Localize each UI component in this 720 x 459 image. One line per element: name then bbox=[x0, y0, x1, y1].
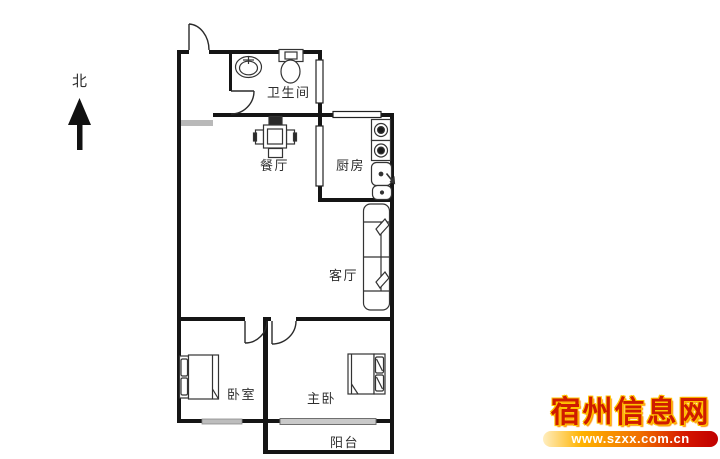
burner-center-2 bbox=[378, 147, 385, 154]
master-bedroom-door bbox=[272, 321, 296, 344]
watermark: 宿州信息网 www.szxx.com.cn bbox=[543, 396, 718, 447]
bathroom-window bbox=[316, 60, 323, 103]
north-label: 北 bbox=[72, 72, 87, 90]
label-living-room: 客厅 bbox=[329, 268, 358, 284]
stove-burner-icon bbox=[372, 120, 391, 161]
watermark-url: www.szxx.com.cn bbox=[543, 431, 718, 447]
dining-chair-bottom bbox=[269, 149, 283, 158]
kitchen-sliding-door bbox=[316, 126, 323, 186]
dining-table-inner bbox=[268, 129, 283, 144]
north-arrow-shaft bbox=[77, 124, 83, 150]
dining-table-icon bbox=[254, 117, 297, 158]
wall-top bbox=[209, 50, 322, 54]
label-master-bedroom: 主卧 bbox=[307, 392, 336, 407]
bed1-pillow-1 bbox=[181, 359, 188, 376]
wall-bedrooms-top-left bbox=[177, 317, 245, 321]
wall-bathroom-left bbox=[229, 54, 232, 91]
wall-bedrooms-top-right bbox=[296, 317, 394, 321]
master-door-swing bbox=[272, 321, 296, 344]
sofa-icon bbox=[364, 204, 390, 310]
balcony-window bbox=[280, 419, 376, 425]
wall-balcony-bottom bbox=[263, 450, 394, 454]
sink-drain-large bbox=[379, 172, 383, 176]
dining-chair-left-back bbox=[254, 133, 257, 141]
wall-bedroom-divider bbox=[263, 317, 268, 453]
sink-drain-small bbox=[381, 191, 384, 194]
kitchen-fixtures bbox=[372, 120, 395, 200]
bedroom-bed-icon bbox=[180, 355, 219, 399]
beam-line bbox=[181, 120, 213, 126]
wall-bathroom-bottom bbox=[213, 113, 322, 117]
entry-door bbox=[189, 24, 209, 50]
bedroom-window bbox=[202, 419, 242, 424]
label-kitchen: 厨房 bbox=[336, 158, 365, 174]
dining-chair-top bbox=[269, 117, 282, 126]
entry-door-swing bbox=[189, 24, 209, 50]
floorplan-canvas: 北 bbox=[0, 0, 720, 459]
bathroom-door bbox=[231, 91, 254, 114]
wash-basin-icon bbox=[236, 57, 262, 78]
bed1-pillow-2 bbox=[181, 378, 188, 395]
label-dining-room: 餐厅 bbox=[260, 158, 289, 174]
toilet-icon bbox=[279, 50, 303, 84]
north-arrow-head bbox=[68, 98, 91, 125]
label-bedroom: 卧室 bbox=[227, 387, 256, 403]
bathroom-fixtures bbox=[236, 50, 304, 84]
kitchen-window bbox=[333, 112, 381, 118]
north-arrow: 北 bbox=[68, 72, 91, 150]
kitchen-sink-icon bbox=[372, 163, 395, 200]
bathroom-door-swing bbox=[231, 91, 254, 114]
master-bed-icon bbox=[348, 354, 385, 394]
label-bathroom: 卫生间 bbox=[267, 86, 311, 101]
burner-center-1 bbox=[378, 127, 385, 134]
watermark-site-name: 宿州信息网 bbox=[543, 396, 718, 430]
toilet-tank-lid bbox=[285, 52, 297, 59]
toilet-bowl bbox=[281, 60, 300, 83]
dining-chair-right-back bbox=[294, 133, 297, 141]
label-balcony: 阳台 bbox=[330, 436, 359, 451]
floorplan-page: 北 bbox=[0, 0, 720, 459]
